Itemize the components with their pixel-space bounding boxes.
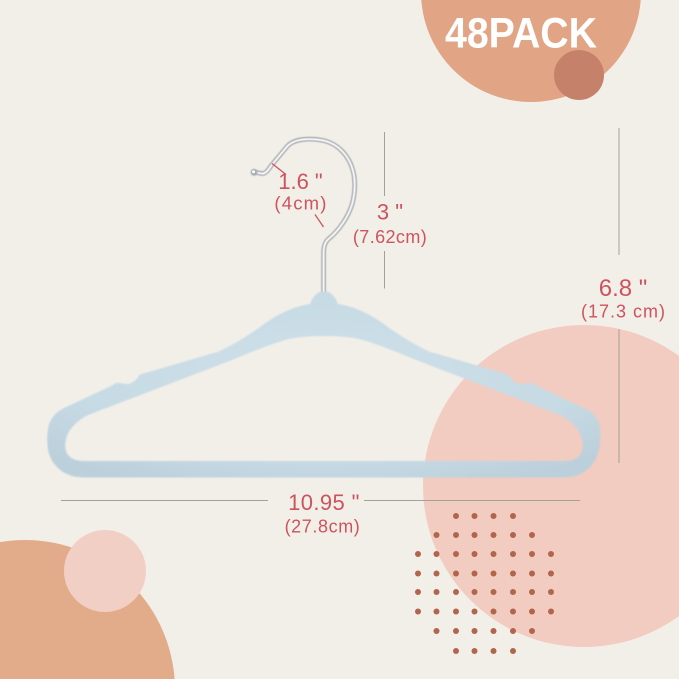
svg-text:(7.62cm): (7.62cm) (353, 227, 427, 247)
svg-text:(17.3 cm): (17.3 cm) (581, 302, 666, 322)
svg-text:(4cm): (4cm) (274, 193, 327, 214)
svg-text:6.8 ": 6.8 " (599, 275, 648, 302)
svg-text:3 ": 3 " (377, 200, 403, 225)
svg-text:10.95 ": 10.95 " (288, 490, 360, 515)
svg-text:48PACK: 48PACK (445, 10, 597, 58)
svg-text:(27.8cm): (27.8cm) (285, 517, 361, 537)
svg-text:1.6 ": 1.6 " (278, 169, 323, 194)
